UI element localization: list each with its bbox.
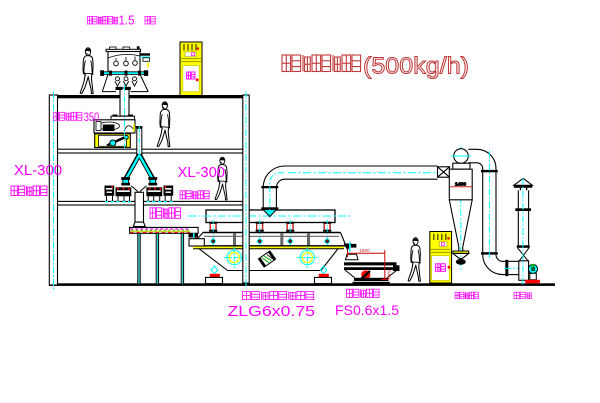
svg-text:XL-300: XL-300 [14,163,62,179]
svg-text:ZLG6x0.75: ZLG6x0.75 [228,303,316,320]
svg-text:FS0.6x1.5: FS0.6x1.5 [335,303,399,318]
svg-text:XL-300: XL-300 [178,165,226,181]
svg-text:(500kg/h): (500kg/h) [363,53,469,79]
svg-text:540: 540 [387,270,392,279]
svg-text:1400: 1400 [455,182,467,187]
svg-text:1500: 1500 [359,248,370,253]
svg-text:1.5: 1.5 [119,14,135,28]
svg-text:350: 350 [84,112,100,124]
